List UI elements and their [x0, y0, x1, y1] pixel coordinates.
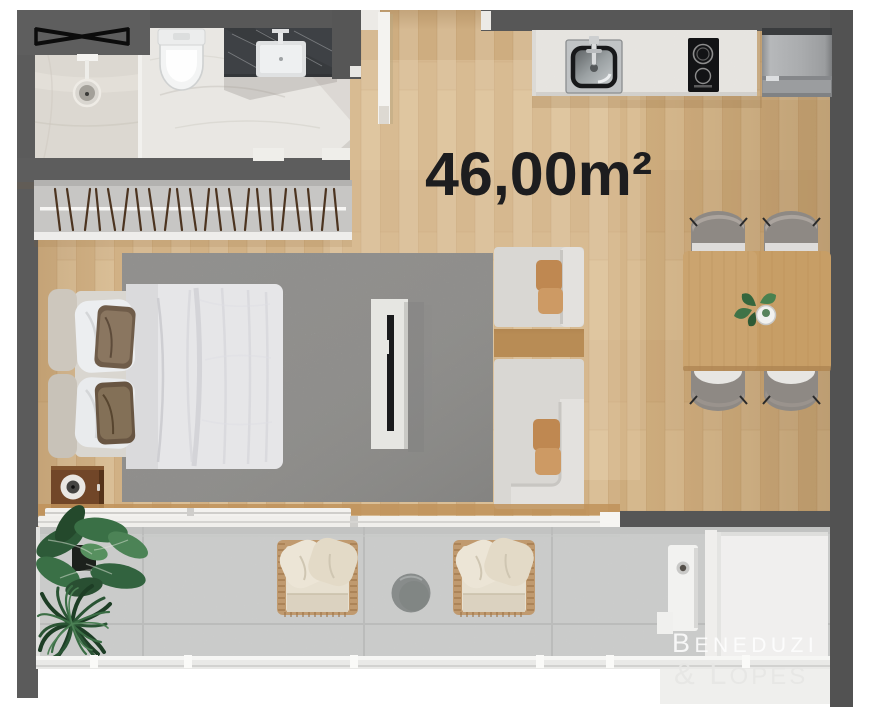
svg-text:46,00m²: 46,00m² — [425, 140, 652, 208]
